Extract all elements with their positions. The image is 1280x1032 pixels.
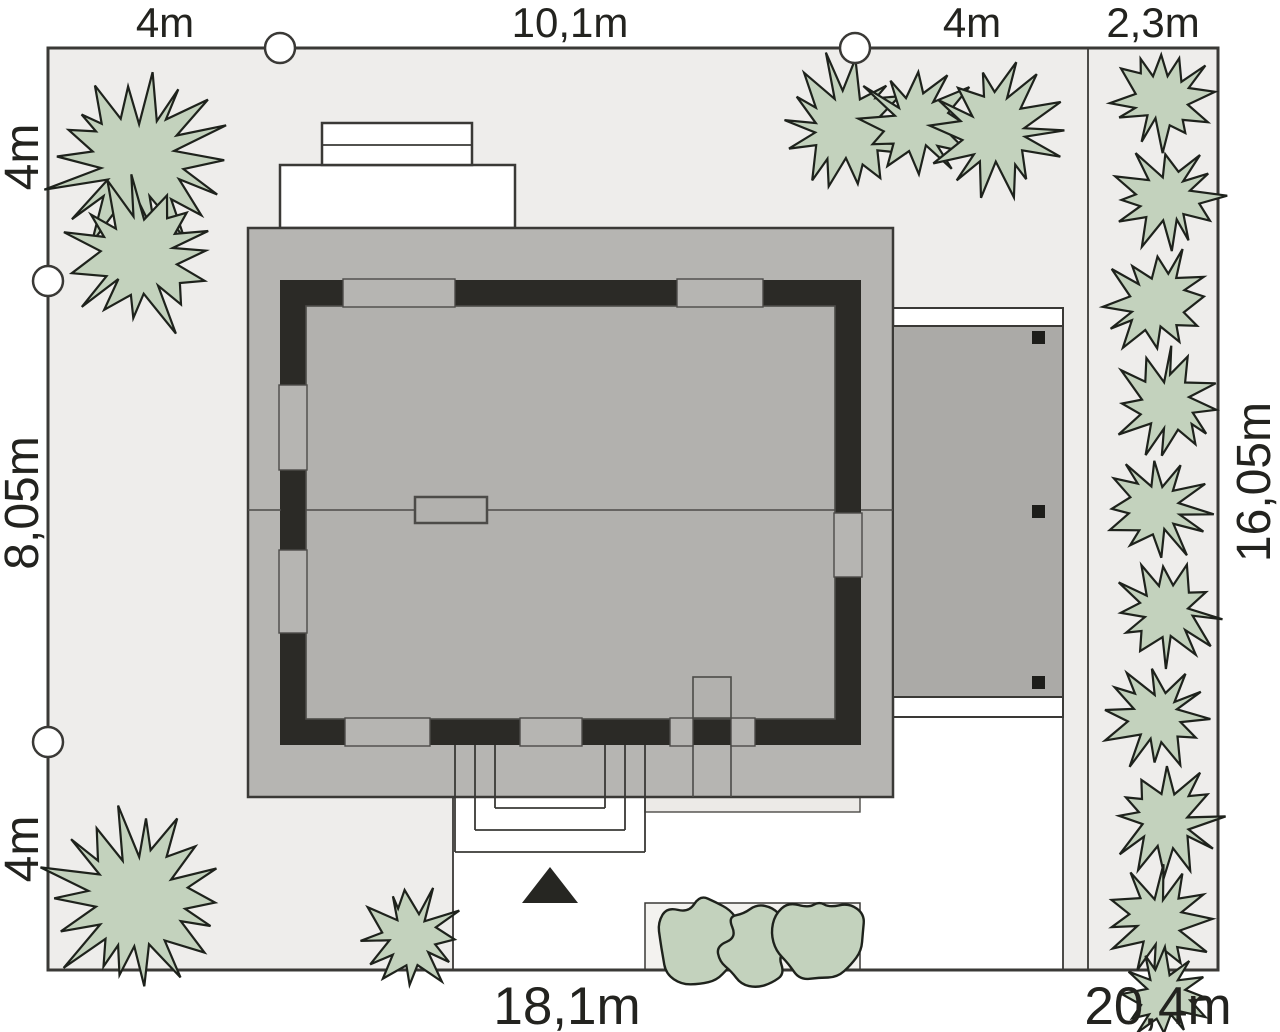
dim-label-top-far-right: 2,3m <box>1106 0 1199 46</box>
terrace-post <box>1032 331 1045 344</box>
site-plan: 4m 10,1m 4m 2,3m 4m 8,05m 4m 16,05m 18,1… <box>0 0 1280 1032</box>
dim-label-left-bottom: 4m <box>0 816 49 883</box>
interior-floor <box>306 306 835 719</box>
dim-label-bottom-right: 20,4m <box>1084 977 1231 1032</box>
dim-label-left-middle: 8,05m <box>0 436 49 569</box>
window-opening <box>279 550 307 633</box>
boundary-marker-circle <box>840 33 870 63</box>
dim-label-bottom-left: 18,1m <box>493 977 640 1032</box>
chimney-base <box>280 165 515 228</box>
boundary-marker-circle <box>265 33 295 63</box>
dim-label-top-right: 4m <box>943 0 1001 46</box>
window-opening <box>345 718 430 746</box>
chimney-top <box>322 123 472 165</box>
boundary-marker-circle <box>33 727 63 757</box>
shrub-group <box>659 898 864 987</box>
window-opening <box>834 513 862 577</box>
terrace-post <box>1032 505 1045 518</box>
dim-label-top-middle: 10,1m <box>512 0 629 46</box>
door-step <box>693 677 731 718</box>
window-opening <box>520 718 582 746</box>
window-opening <box>670 718 693 746</box>
dim-label-top-left: 4m <box>136 0 194 46</box>
window-opening <box>731 718 755 746</box>
paved-apron <box>645 797 860 812</box>
window-opening <box>279 385 307 470</box>
ridge-skylight <box>415 497 487 523</box>
site-plan-drawing: 4m 10,1m 4m 2,3m 4m 8,05m 4m 16,05m 18,1… <box>0 0 1280 1032</box>
window-opening <box>343 279 455 307</box>
window-opening <box>677 279 763 307</box>
dim-label-right: 16,05m <box>1228 402 1280 562</box>
boundary-marker-circle <box>33 266 63 296</box>
dim-label-left-top: 4m <box>0 124 49 191</box>
terrace-post <box>1032 676 1045 689</box>
